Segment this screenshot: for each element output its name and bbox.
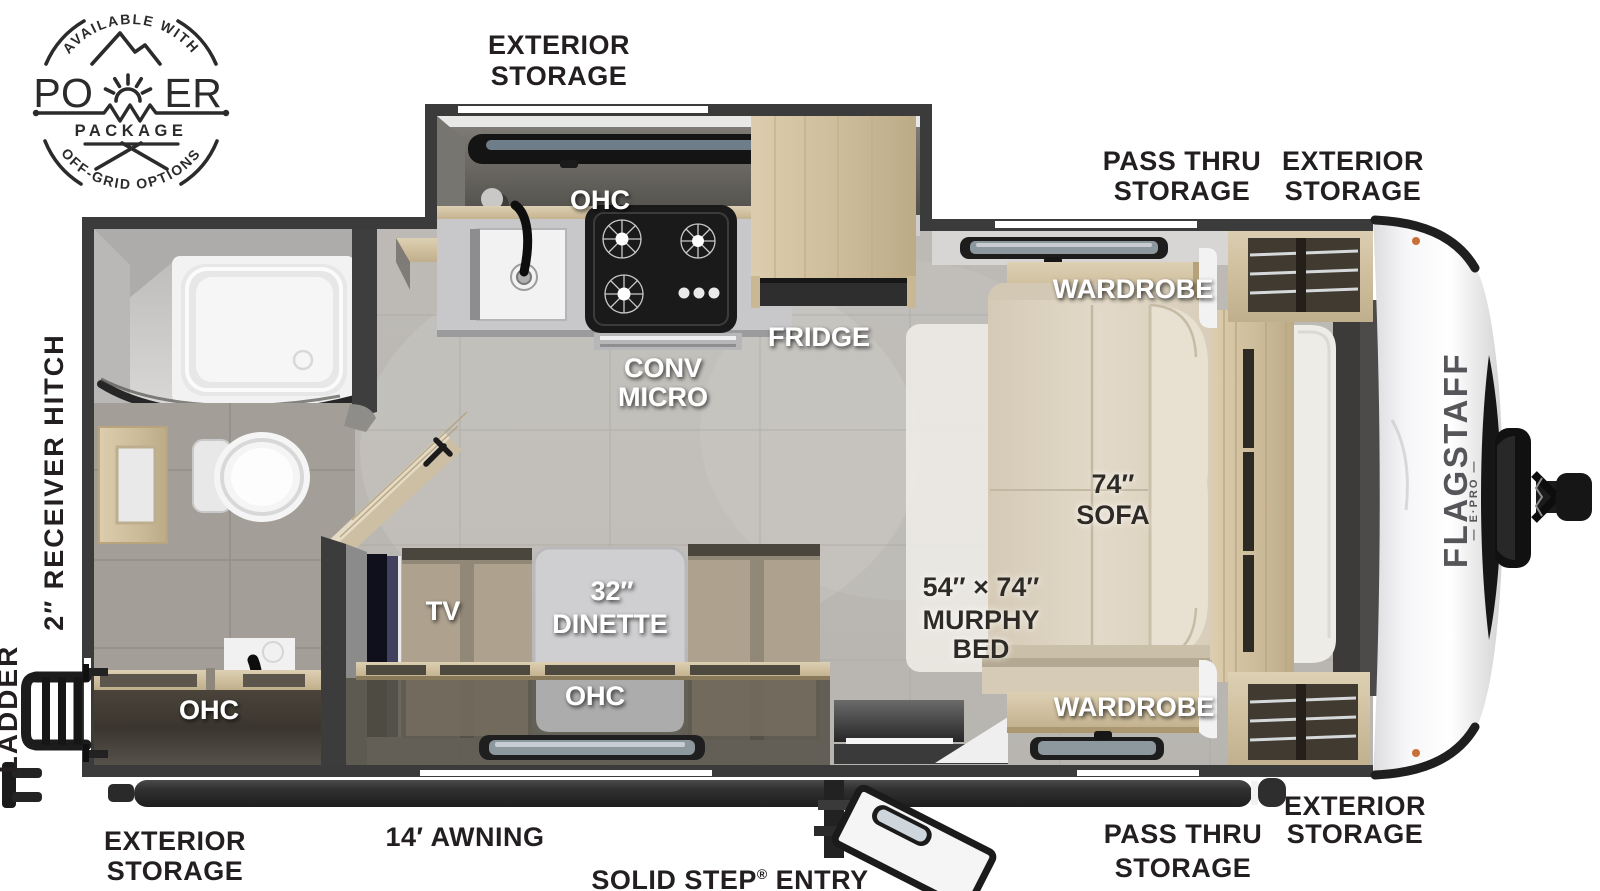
- svg-text:SOLID STEP® ENTRY: SOLID STEP® ENTRY: [591, 865, 868, 891]
- svg-text:OHC: OHC: [570, 185, 630, 215]
- svg-text:E: E: [164, 70, 191, 116]
- svg-text:PASS THRU: PASS THRU: [1104, 819, 1263, 849]
- svg-text:STORAGE: STORAGE: [107, 856, 244, 886]
- svg-text:P: P: [33, 70, 60, 116]
- svg-text:FRIDGE: FRIDGE: [768, 322, 870, 352]
- svg-text:MURPHY: MURPHY: [922, 605, 1039, 635]
- svg-text:MICRO: MICRO: [618, 382, 708, 412]
- svg-text:— E·PRO —: — E·PRO —: [1468, 460, 1480, 541]
- svg-text:EXTERIOR: EXTERIOR: [1282, 146, 1424, 176]
- svg-text:STORAGE: STORAGE: [491, 61, 628, 91]
- svg-text:DINETTE: DINETTE: [552, 609, 668, 639]
- svg-text:WARDROBE: WARDROBE: [1054, 692, 1215, 722]
- svg-text:32″: 32″: [591, 576, 634, 606]
- svg-text:EXTERIOR: EXTERIOR: [488, 30, 630, 60]
- svg-text:PACKAGE: PACKAGE: [75, 122, 188, 140]
- svg-text:LADDER: LADDER: [0, 645, 23, 774]
- svg-text:EXTERIOR: EXTERIOR: [1284, 791, 1426, 821]
- svg-text:STORAGE: STORAGE: [1287, 819, 1424, 849]
- svg-text:CONV: CONV: [624, 353, 702, 383]
- svg-text:BED: BED: [952, 634, 1009, 664]
- svg-text:WARDROBE: WARDROBE: [1053, 274, 1214, 304]
- svg-text:STORAGE: STORAGE: [1114, 176, 1251, 206]
- svg-text:R: R: [192, 70, 222, 116]
- svg-text:SOFA: SOFA: [1076, 500, 1150, 530]
- svg-text:PASS THRU: PASS THRU: [1103, 146, 1262, 176]
- svg-text:OHC: OHC: [565, 681, 625, 711]
- svg-text:OHC: OHC: [179, 695, 239, 725]
- svg-text:54″ × 74″: 54″ × 74″: [923, 572, 1040, 602]
- svg-text:2″ RECEIVER HITCH: 2″ RECEIVER HITCH: [39, 333, 69, 630]
- svg-text:STORAGE: STORAGE: [1285, 176, 1422, 206]
- svg-text:O: O: [61, 70, 93, 116]
- svg-text:TV: TV: [426, 596, 461, 626]
- svg-text:14′ AWNING: 14′ AWNING: [386, 822, 545, 852]
- svg-text:74″: 74″: [1092, 469, 1135, 499]
- svg-text:EXTERIOR: EXTERIOR: [104, 826, 246, 856]
- svg-text:STORAGE: STORAGE: [1115, 853, 1252, 883]
